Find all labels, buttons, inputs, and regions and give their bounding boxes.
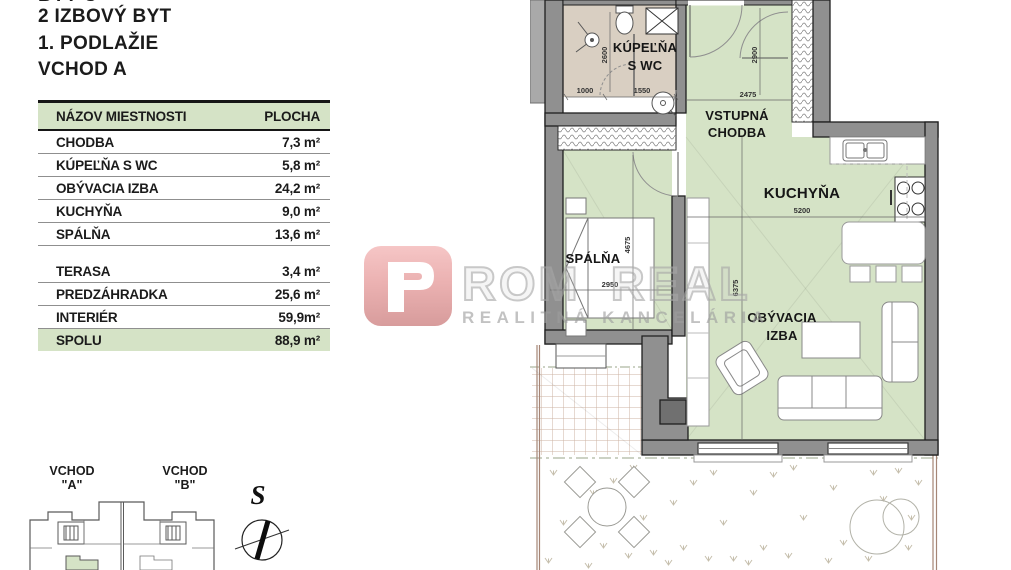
bedroom-furniture bbox=[566, 198, 654, 336]
floor-plan: 1000 1550 2600 2900 2475 4675 2950 5200 … bbox=[530, 0, 945, 570]
floor-plan-drawing: 1000 1550 2600 2900 2475 4675 2950 5200 … bbox=[530, 0, 945, 570]
room-label-bedroom: SPÁLŇA bbox=[566, 251, 621, 266]
col-room-name: NÁZOV MIESTNOSTI bbox=[56, 109, 186, 124]
compass-north-label: S bbox=[250, 480, 265, 510]
room-area-table: NÁZOV MIESTNOSTI PLOCHA CHODBA7,3 m² KÚP… bbox=[38, 100, 330, 351]
svg-text:2475: 2475 bbox=[740, 90, 757, 99]
table-row: TERASA3,4 m² bbox=[38, 260, 330, 283]
table-gap bbox=[38, 246, 330, 260]
svg-text:IZBA: IZBA bbox=[766, 328, 798, 343]
floorplan-page: BYT C 2 IZBOVÝ BYT 1. PODLAŽIE VCHOD A N… bbox=[0, 0, 1011, 570]
table-header: NÁZOV MIESTNOSTI PLOCHA bbox=[38, 100, 330, 131]
promreal-logo-icon bbox=[364, 246, 452, 326]
sink-icon bbox=[843, 140, 887, 161]
svg-text:4675: 4675 bbox=[623, 237, 632, 254]
table-row: KUCHYŇA9,0 m² bbox=[38, 200, 330, 223]
apartment-title: 2 IZBOVÝ BYT bbox=[38, 6, 171, 28]
svg-text:S WC: S WC bbox=[628, 58, 663, 73]
table-row: OBÝVACIA IZBA24,2 m² bbox=[38, 177, 330, 200]
shower-tray-icon bbox=[646, 8, 678, 34]
svg-text:CHODBA: CHODBA bbox=[708, 125, 767, 140]
sofa-right bbox=[882, 302, 918, 382]
sofa bbox=[778, 376, 882, 420]
table-row: SPÁLŇA13,6 m² bbox=[38, 223, 330, 246]
svg-text:2900: 2900 bbox=[750, 47, 759, 64]
svg-text:1000: 1000 bbox=[577, 86, 594, 95]
room-label-bathroom: KÚPEĽŇA bbox=[613, 40, 678, 55]
garden-table-set bbox=[564, 466, 649, 547]
compass: S bbox=[222, 478, 302, 570]
svg-text:2950: 2950 bbox=[602, 280, 619, 289]
table-row: KÚPEĽŇA S WC5,8 m² bbox=[38, 154, 330, 177]
table-row: CHODBA7,3 m² bbox=[38, 131, 330, 154]
col-area: PLOCHA bbox=[264, 109, 320, 124]
room-label-kitchen: KUCHYŇA bbox=[764, 184, 840, 202]
building-minimap bbox=[22, 498, 222, 570]
coffee-table bbox=[802, 322, 860, 358]
svg-text:6375: 6375 bbox=[731, 280, 740, 297]
svg-text:5200: 5200 bbox=[794, 206, 811, 215]
entrance-title: VCHOD A bbox=[38, 59, 127, 81]
svg-text:1550: 1550 bbox=[634, 86, 651, 95]
stove-icon bbox=[891, 177, 925, 222]
minimap-label-entrance-b: VCHOD"B" bbox=[145, 464, 225, 492]
toilet-icon bbox=[616, 6, 633, 34]
floor-title: 1. PODLAŽIE bbox=[38, 33, 158, 55]
minimap-label-entrance-a: VCHOD"A" bbox=[32, 464, 112, 492]
table-row-total: SPOLU88,9 m² bbox=[38, 329, 330, 351]
svg-text:2600: 2600 bbox=[600, 47, 609, 64]
table-row: INTERIÉR59,9m² bbox=[38, 306, 330, 329]
room-label-hall: VSTUPNÁ bbox=[705, 108, 769, 123]
island-icon bbox=[842, 222, 925, 282]
room-label-living: OBÝVACIA bbox=[747, 310, 817, 325]
table-row: PREDZÁHRADKA25,6 m² bbox=[38, 283, 330, 306]
